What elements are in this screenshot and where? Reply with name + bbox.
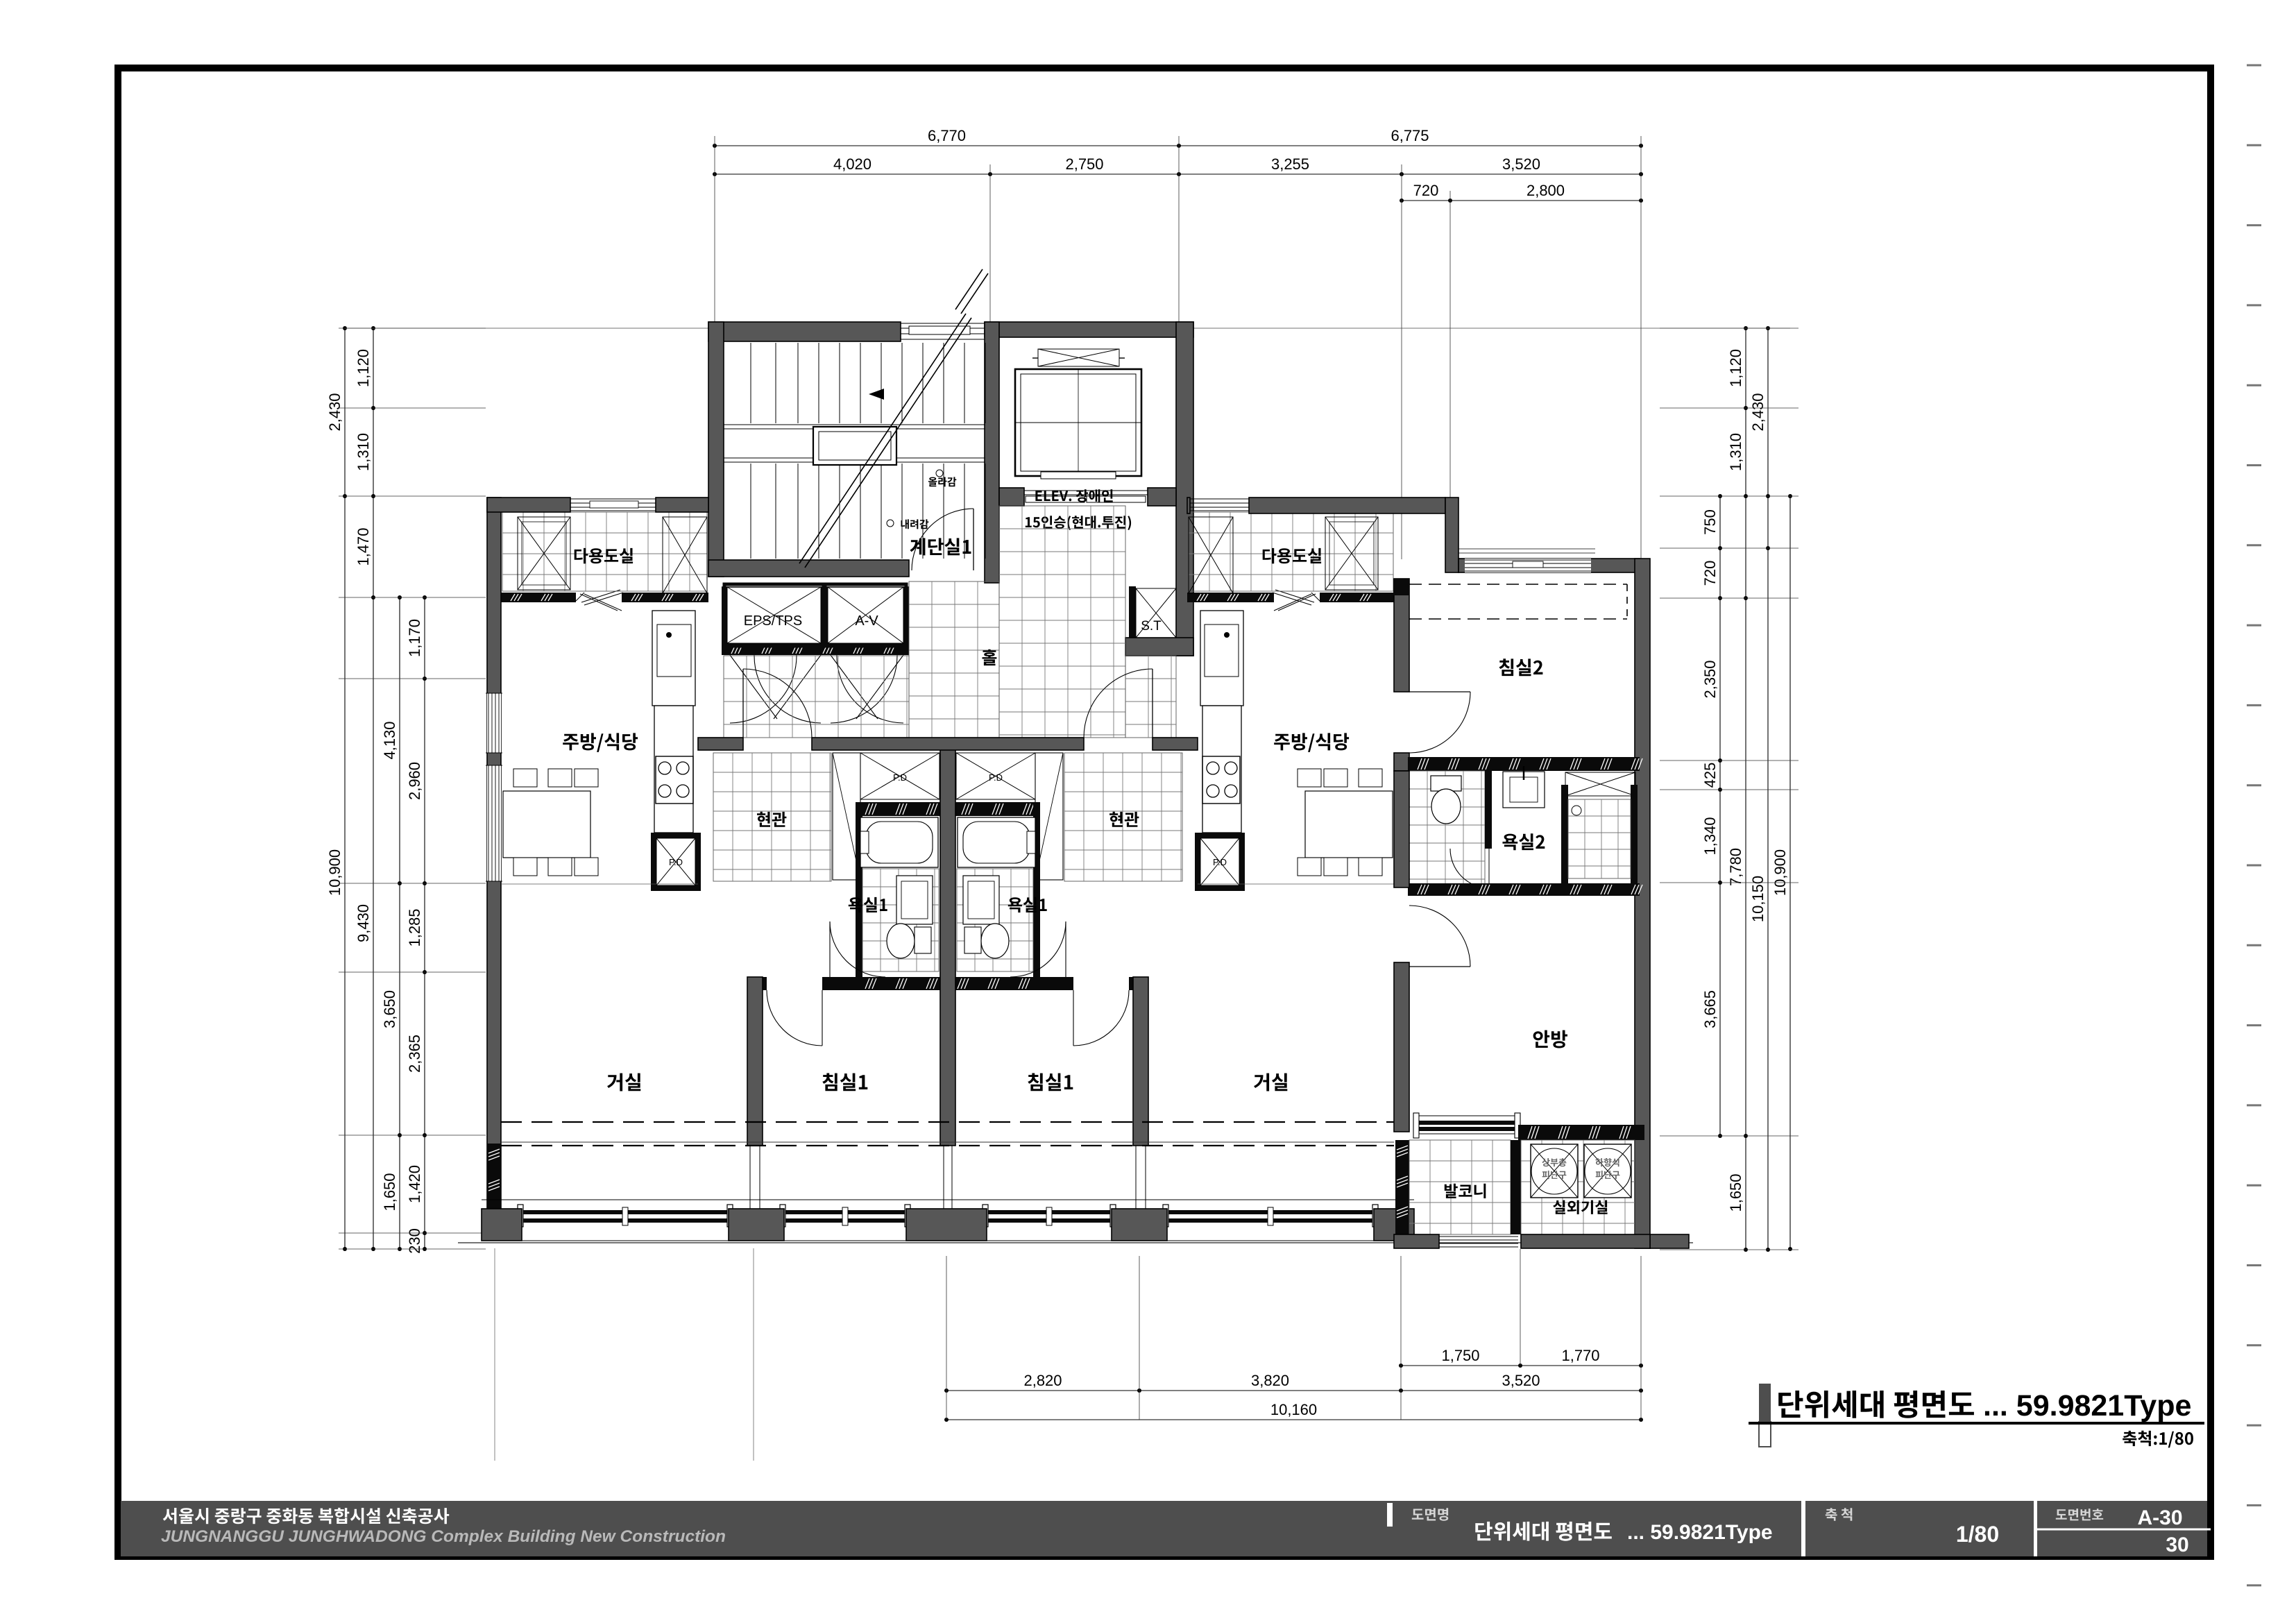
svg-text:1,650: 1,650: [1727, 1173, 1744, 1212]
svg-text:6,770: 6,770: [928, 127, 966, 144]
svg-text:... 59.9821Type: ... 59.9821Type: [1983, 1389, 2191, 1422]
svg-text:6,775: 6,775: [1391, 127, 1429, 144]
svg-text:230: 230: [406, 1228, 423, 1254]
svg-text:3,665: 3,665: [1701, 990, 1719, 1028]
svg-text:2,365: 2,365: [406, 1035, 423, 1073]
svg-text:3,520: 3,520: [1502, 1372, 1540, 1389]
svg-text:P.D: P.D: [669, 857, 683, 867]
svg-text:1,770: 1,770: [1561, 1347, 1599, 1364]
svg-text:3,255: 3,255: [1271, 155, 1309, 173]
svg-text:1,650: 1,650: [381, 1173, 398, 1211]
svg-text:2,430: 2,430: [1749, 393, 1767, 431]
svg-text:3,820: 3,820: [1251, 1372, 1289, 1389]
svg-text:P.D: P.D: [1213, 857, 1227, 867]
svg-text:3,520: 3,520: [1502, 155, 1540, 173]
svg-text:P.D: P.D: [893, 772, 907, 783]
svg-text:720: 720: [1701, 561, 1719, 586]
svg-text:2,430: 2,430: [326, 393, 343, 431]
svg-text:P.D: P.D: [989, 772, 1003, 783]
svg-text:S.T: S.T: [1141, 619, 1162, 634]
svg-text:EPS/TPS: EPS/TPS: [744, 613, 802, 629]
svg-text:2,750: 2,750: [1065, 155, 1103, 173]
svg-text:425: 425: [1701, 763, 1719, 788]
svg-text:3,650: 3,650: [381, 990, 398, 1028]
svg-text:30: 30: [2166, 1533, 2188, 1556]
svg-text:4,020: 4,020: [833, 155, 871, 173]
svg-text:1,420: 1,420: [406, 1165, 423, 1203]
svg-text:1/80: 1/80: [1956, 1522, 1999, 1547]
svg-text:7,780: 7,780: [1727, 848, 1744, 886]
svg-text:1,310: 1,310: [1727, 433, 1744, 471]
svg-text:1,120: 1,120: [355, 349, 372, 387]
svg-text:1,470: 1,470: [355, 527, 372, 566]
svg-text:10,900: 10,900: [326, 849, 343, 896]
svg-text:1,170: 1,170: [406, 619, 423, 657]
svg-text:JUNGNANGGU JUNGHWADONG Comple: JUNGNANGGU JUNGHWADONG Complex Building …: [161, 1527, 726, 1546]
svg-text:2,800: 2,800: [1527, 182, 1565, 199]
svg-text:9,430: 9,430: [355, 904, 372, 942]
svg-text:720: 720: [1413, 182, 1439, 199]
svg-text:4,130: 4,130: [381, 721, 398, 759]
svg-text:1,750: 1,750: [1441, 1347, 1479, 1364]
svg-text:1,340: 1,340: [1701, 817, 1719, 855]
svg-text:A-30: A-30: [2137, 1506, 2182, 1529]
svg-text:1,285: 1,285: [406, 908, 423, 946]
svg-text:A-V: A-V: [855, 613, 878, 629]
svg-text:2,350: 2,350: [1701, 660, 1719, 698]
svg-text:2,820: 2,820: [1023, 1372, 1062, 1389]
svg-text:1,310: 1,310: [355, 433, 372, 471]
svg-text:1,120: 1,120: [1727, 349, 1744, 387]
svg-text:10,900: 10,900: [1771, 849, 1789, 896]
svg-text:750: 750: [1701, 509, 1719, 535]
svg-text:2,960: 2,960: [406, 762, 423, 800]
svg-text:10,160: 10,160: [1270, 1401, 1317, 1418]
svg-text:... 59.9821Type: ... 59.9821Type: [1627, 1521, 1773, 1544]
